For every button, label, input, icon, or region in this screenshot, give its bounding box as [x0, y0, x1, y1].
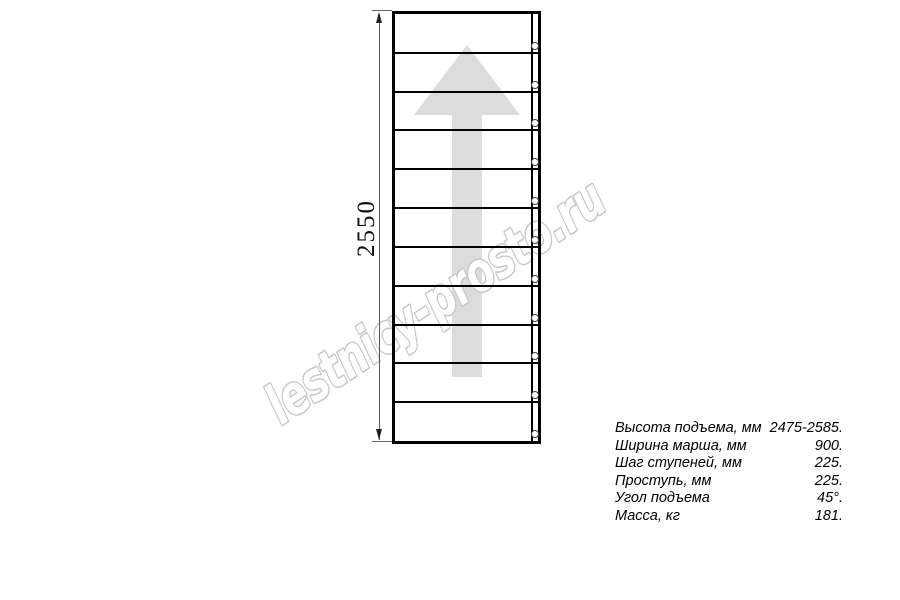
- step-line: [395, 401, 538, 403]
- dimension-extension-tick-bottom: [372, 441, 392, 442]
- step-line: [395, 285, 538, 287]
- fastener-hole-icon: [531, 430, 539, 438]
- fastener-hole-icon: [531, 81, 539, 89]
- step-line: [395, 324, 538, 326]
- spec-label: Шаг ступеней, мм: [615, 455, 742, 473]
- step-line: [395, 91, 538, 93]
- step-line: [395, 52, 538, 54]
- spec-value: 225.: [815, 473, 843, 491]
- spec-row: Ширина марша, мм 900.: [615, 438, 843, 456]
- spec-row: Масса, кг 181.: [615, 508, 843, 526]
- fastener-hole-icon: [531, 314, 539, 322]
- fastener-hole-icon: [531, 236, 539, 244]
- stair-flight-top-view: [392, 11, 541, 444]
- fastener-hole-icon: [531, 119, 539, 127]
- stringer-line: [531, 14, 533, 441]
- spec-row: Угол подъема 45°.: [615, 490, 843, 508]
- spec-label: Высота подъема, мм: [615, 420, 762, 438]
- step-line: [395, 246, 538, 248]
- spec-row: Высота подъема, мм 2475-2585.: [615, 420, 843, 438]
- spec-label: Угол подъема: [615, 490, 710, 508]
- step-line: [395, 207, 538, 209]
- fastener-hole-icon: [531, 352, 539, 360]
- spec-value: 2475-2585.: [770, 420, 843, 438]
- spec-value: 181.: [815, 508, 843, 526]
- dimension-arrow-down-icon: [376, 429, 382, 440]
- fastener-hole-icon: [531, 158, 539, 166]
- specs-table: Высота подъема, мм 2475-2585. Ширина мар…: [615, 420, 843, 525]
- step-line: [395, 362, 538, 364]
- spec-value: 900.: [815, 438, 843, 456]
- spec-label: Ширина марша, мм: [615, 438, 747, 456]
- spec-value: 45°.: [817, 490, 843, 508]
- fastener-hole-icon: [531, 275, 539, 283]
- dimension-arrow-up-icon: [376, 12, 382, 23]
- spec-value: 225.: [815, 455, 843, 473]
- dimension-label: 2550: [353, 199, 381, 257]
- spec-row: Шаг ступеней, мм 225.: [615, 455, 843, 473]
- spec-row: Проступь, мм 225.: [615, 473, 843, 491]
- spec-label: Проступь, мм: [615, 473, 711, 491]
- dimension-extension-tick-top: [372, 10, 392, 11]
- fastener-hole-icon: [531, 197, 539, 205]
- spec-label: Масса, кг: [615, 508, 680, 526]
- fastener-hole-icon: [531, 42, 539, 50]
- step-line: [395, 129, 538, 131]
- step-line: [395, 168, 538, 170]
- fastener-hole-icon: [531, 391, 539, 399]
- diagram-canvas: lestnicy-prosto.ru 2550 Высота подъема, …: [0, 0, 900, 600]
